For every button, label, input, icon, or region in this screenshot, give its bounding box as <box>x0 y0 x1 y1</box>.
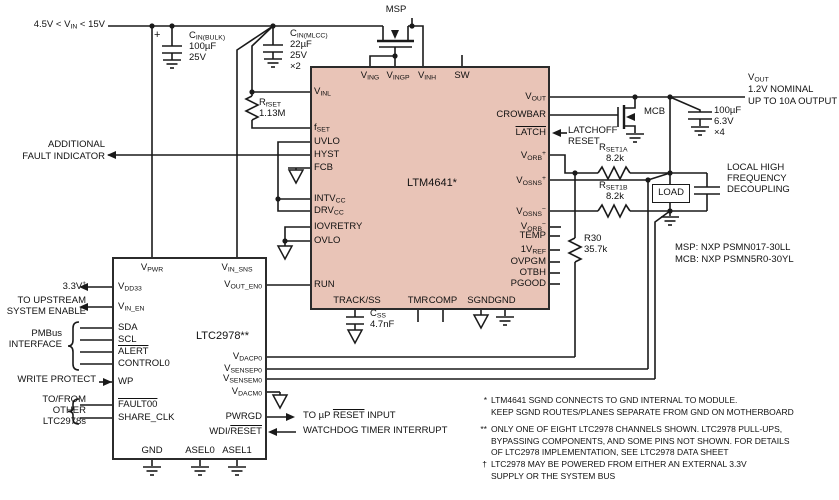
ltm4641-pin-temp: TEMP <box>520 231 546 241</box>
cin-mlcc-voltage: 25V <box>290 51 307 61</box>
r30-value: 35.7k <box>584 245 607 255</box>
decoupling-line2: FREQUENCY <box>727 174 787 184</box>
rset1b-value: 8.2k <box>606 192 624 202</box>
brace-pmbus <box>68 322 79 370</box>
msp-type: MSP: NXP PSMN017-30LL <box>675 243 790 253</box>
ltm4641-pin-vinh: VINH <box>418 71 436 82</box>
decoupling-line1: LOCAL HIGH <box>727 163 784 173</box>
ltc2978-pin-scl: SCL <box>118 335 136 345</box>
ltm4641-pin-otbh: OTBH <box>520 268 546 278</box>
tofrom-line1: TO/FROM <box>42 395 86 405</box>
ltc2978-pin-sda: SDA <box>118 323 138 333</box>
v33-label: 3.3V† <box>63 281 86 293</box>
latchoff-line2: RESET <box>568 137 600 147</box>
ltc2978-pin-vpwr: VPWR <box>141 263 163 274</box>
ltc2978-pin-vinen: VIN_EN <box>118 302 144 313</box>
ltm4641-pin-trackss: TRACK/SS <box>333 296 381 306</box>
ltc2978-pin-asel1: ASEL1 <box>222 446 252 456</box>
ltc2978-pin-vdacp0: VDACP0 <box>233 352 262 363</box>
upstream-line1: TO UPSTREAM <box>18 296 86 306</box>
reset-input-label: TO µP RESET INPUT <box>303 411 396 421</box>
ltm4641-pin-intvcc: INTVCC <box>314 194 346 205</box>
load-box: LOAD <box>652 184 690 203</box>
ltc2978-pin-vsensem0: VSENSEM0 <box>223 374 262 385</box>
mcb-label: MCB <box>644 107 665 117</box>
ltm4641-pin-pgood: PGOOD <box>511 279 546 289</box>
ltm4641-pin-ving: VING <box>361 71 379 82</box>
ltm4641-pin-tmr: TMR <box>408 296 429 306</box>
note1-mark: * <box>484 396 487 405</box>
ltm4641-pin-hyst: HYST <box>314 150 339 160</box>
input-voltage-label: 4.5V < VIN < 15V <box>34 20 105 31</box>
ltc2978-pin-pwrgd: PWRGD <box>226 412 262 422</box>
ltc2978-pin-vdd33: VDD33 <box>118 282 142 293</box>
ltc2978-pin-fault00: FAULT00 <box>118 400 157 410</box>
ltm4641-pin-crowbar: CROWBAR <box>496 110 546 120</box>
ltm4641-pin-vinl: VINL <box>314 87 331 98</box>
ltm4641-pin-comp: COMP <box>429 296 458 306</box>
ltc2978-pin-vinsns: VIN_SNS <box>221 263 252 274</box>
ltm4641-pin-vorb-plus: VORB+ <box>521 150 546 162</box>
ltc-bottom-grounds <box>143 460 246 475</box>
ltc2978-pin-control0: CONTROL0 <box>118 359 170 369</box>
note3-line2: SUPPLY OR THE SYSTEM BUS <box>491 472 615 481</box>
ltc2978-name: LTC2978** <box>196 330 249 342</box>
fault-indicator-line2: FAULT INDICATOR <box>22 152 105 162</box>
r30-name: R30 <box>584 234 601 244</box>
cin-bulk-value: 100µF <box>189 42 216 52</box>
resistor-rfset <box>246 96 258 120</box>
ltm4641-pin-vosns-minus: VOSNS− <box>516 206 546 218</box>
schematic-canvas: LOAD <box>0 0 839 500</box>
ltm4641-pin-vingp: VINGP <box>386 71 409 82</box>
ltm4641-pin-vout: VOUT <box>525 92 546 103</box>
msp-label: MSP <box>386 5 407 15</box>
ltc2978-pin-asel0: ASEL0 <box>185 446 215 456</box>
cout-value: 100µF <box>714 106 741 116</box>
rset1a-value: 8.2k <box>606 154 624 164</box>
ltc2978-pin-vouten0: VOUT_EN0 <box>224 280 262 291</box>
ltc2978-pin-wp: WP <box>118 377 133 387</box>
fault-indicator-line1: ADDITIONAL <box>48 140 105 150</box>
ltm4641-pin-ovpgm: OVPGM <box>511 257 546 267</box>
ltc-right-wires <box>267 392 296 436</box>
ltm4641-pin-sw: SW <box>454 71 469 81</box>
ltm4641-pin-ovlo: OVLO <box>314 236 340 246</box>
capacitor-cin-bulk <box>162 26 182 68</box>
ltm4641-pin-uvlo: UVLO <box>314 137 340 147</box>
note2-line1: ONLY ONE OF EIGHT LTC2978 CHANNELS SHOWN… <box>491 425 782 434</box>
ltm4641-pin-fcb: FCB <box>314 163 333 173</box>
ltc2978-pin-vdacm0: VDACM0 <box>232 387 262 398</box>
ltc2978-pin-shareclk: SHARE_CLK <box>118 413 175 423</box>
mcb-type: MCB: NXP PSMN5R0-30YL <box>675 255 794 265</box>
ltm4641-pin-1vref: 1VREF <box>521 245 546 256</box>
cout-voltage: 6.3V <box>714 117 734 127</box>
ltm4641-pin-fset: fSET <box>314 123 330 134</box>
rfset-value: 1.13M <box>259 109 285 119</box>
write-protect-label: WRITE PROTECT <box>17 375 96 385</box>
latchoff-line1: LATCHOFF <box>568 126 617 136</box>
cin-mlcc-qty: ×2 <box>290 62 301 72</box>
ltm4641-pin-drvcc: DRVCC <box>314 206 344 217</box>
ltm4641-name: LTM4641* <box>407 177 457 189</box>
ltm4641-pin-latch: LATCH <box>516 128 546 138</box>
ltm4641-pin-run: RUN <box>314 280 335 290</box>
mosfet-msp <box>370 18 462 66</box>
capacitor-cout <box>670 97 712 135</box>
vout-label: VOUT <box>748 73 769 84</box>
note2-line3: OF LTC2978 IMPLEMENTATION, SEE LTC2978 D… <box>491 448 729 457</box>
note2-line2: BYPASSING COMPONENTS, AND SOME PINS NOT … <box>491 437 790 446</box>
tofrom-line3: LTC2978s <box>43 417 86 427</box>
load-label: LOAD <box>658 187 684 198</box>
ltc2978-pin-alert: ALERT <box>118 347 148 357</box>
pmbus-line2: INTERFACE <box>9 340 62 350</box>
pmbus-line1: PMBus <box>31 329 62 339</box>
upstream-line2: SYSTEM ENABLE <box>7 307 86 317</box>
note2-mark: ** <box>480 425 487 434</box>
note1-line1: LTM4641 SGND CONNECTS TO GND INTERNAL TO… <box>491 396 737 405</box>
watchdog-label: WATCHDOG TIMER INTERRUPT <box>303 426 447 436</box>
cout-qty: ×4 <box>714 128 725 138</box>
tofrom-line2: OTHER <box>53 406 86 416</box>
ltm-left-wires <box>107 142 310 285</box>
vout-nominal: 1.2V NOMINAL <box>748 85 813 95</box>
note1-line2: KEEP SGND ROUTES/PLANES SEPARATE FROM GN… <box>491 408 794 417</box>
css-value: 4.7nF <box>370 320 394 330</box>
note3-mark: † <box>482 460 487 469</box>
vout-current: UP TO 10A OUTPUT <box>748 97 837 107</box>
ltm4641-pin-gnd: GND <box>494 296 515 306</box>
latch-arrow <box>552 129 567 137</box>
cin-bulk-plus: + <box>154 29 160 41</box>
cin-bulk-voltage: 25V <box>189 53 206 63</box>
cin-mlcc-value: 22µF <box>290 40 312 50</box>
ltc2978-pin-gnd: GND <box>141 446 162 456</box>
ltc2978-pin-wdireset: WDI/RESET <box>209 427 262 437</box>
decoupling-line3: DECOUPLING <box>727 185 790 195</box>
ltm4641-pin-sgnd: SGND <box>467 296 494 306</box>
note3-line1: LTC2978 MAY BE POWERED FROM EITHER AN EX… <box>491 460 747 469</box>
ltm4641-pin-vosns-plus: VOSNS+ <box>516 175 546 187</box>
ltm4641-pin-iovretry: IOVRETRY <box>314 222 362 232</box>
